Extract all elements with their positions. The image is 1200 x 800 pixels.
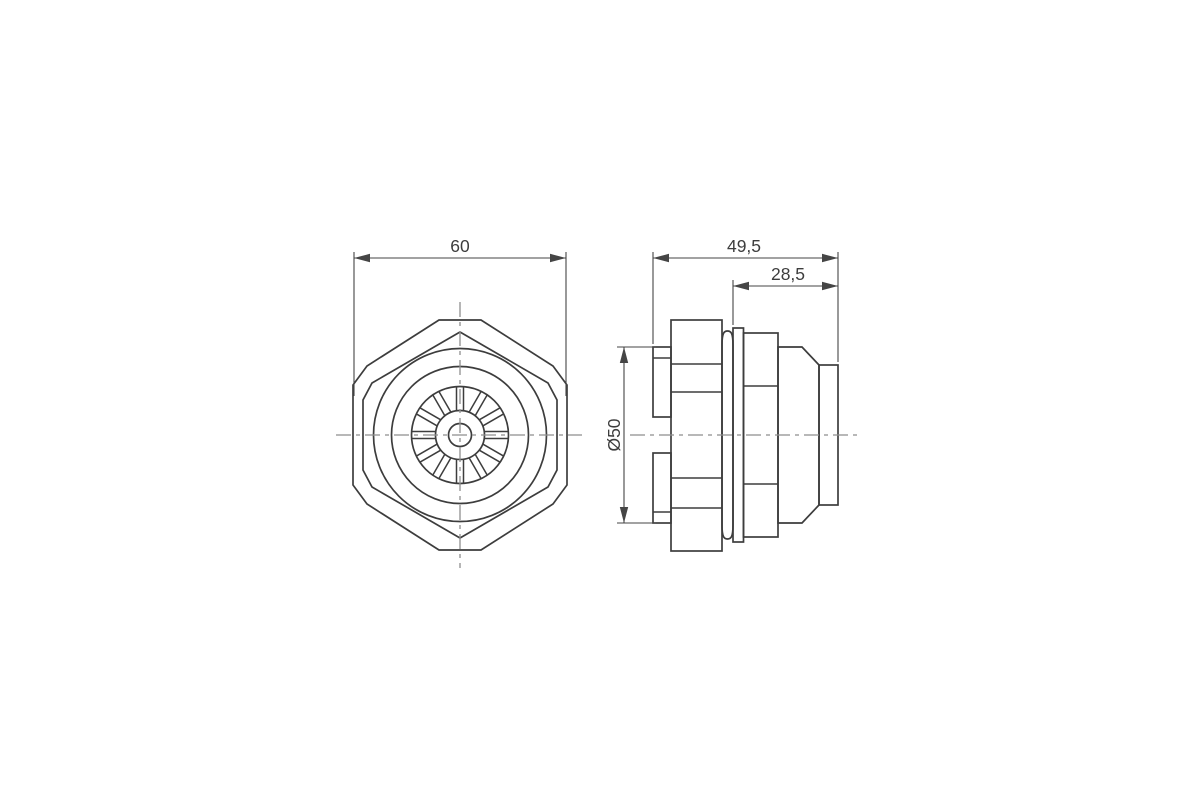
drawing-canvas: 60 49,5 28,5 Ø50 [0,0,1200,800]
technical-drawing: 60 49,5 28,5 Ø50 [0,0,1200,800]
dimension-partial-length: 28,5 [733,264,838,325]
dimension-label-diameter-50: Ø50 [604,418,624,451]
dimensions: 60 49,5 28,5 Ø50 [354,236,838,523]
dimension-label-60: 60 [450,236,470,256]
dimension-label-28-5: 28,5 [771,264,805,284]
centerlines [336,302,862,568]
dimension-label-49-5: 49,5 [727,236,761,256]
dimension-overall-length: 49,5 [653,236,838,362]
